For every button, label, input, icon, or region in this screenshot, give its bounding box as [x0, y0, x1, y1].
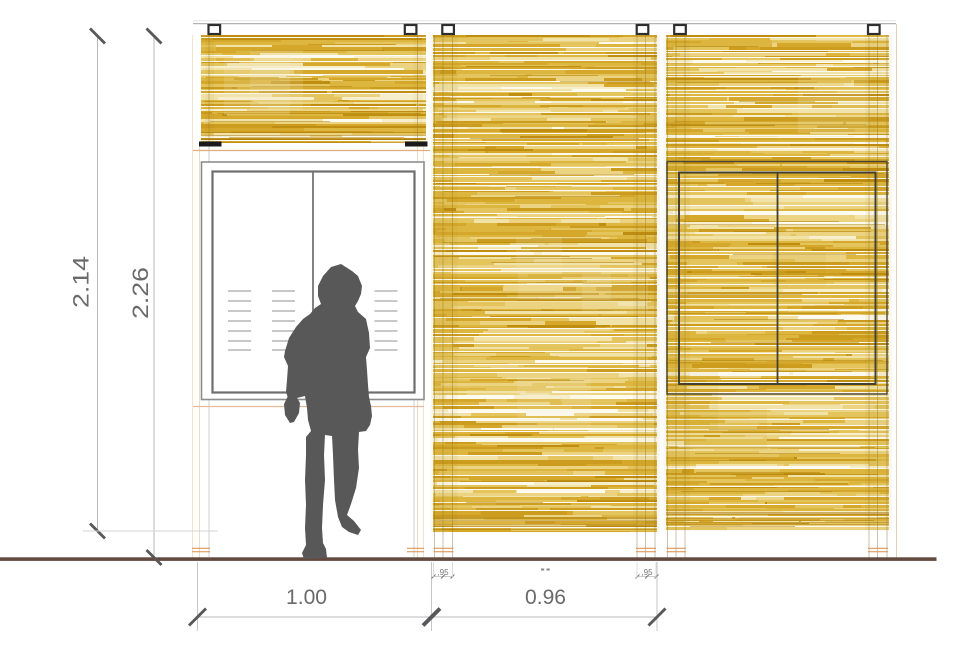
svg-text:,95: ,95 — [641, 568, 653, 577]
svg-text:,95: ,95 — [437, 568, 449, 577]
svg-text:1.00: 1.00 — [286, 586, 327, 609]
svg-text:0.96: 0.96 — [525, 586, 566, 609]
svg-text:2.26: 2.26 — [128, 267, 153, 319]
svg-text:2.14: 2.14 — [69, 256, 94, 308]
